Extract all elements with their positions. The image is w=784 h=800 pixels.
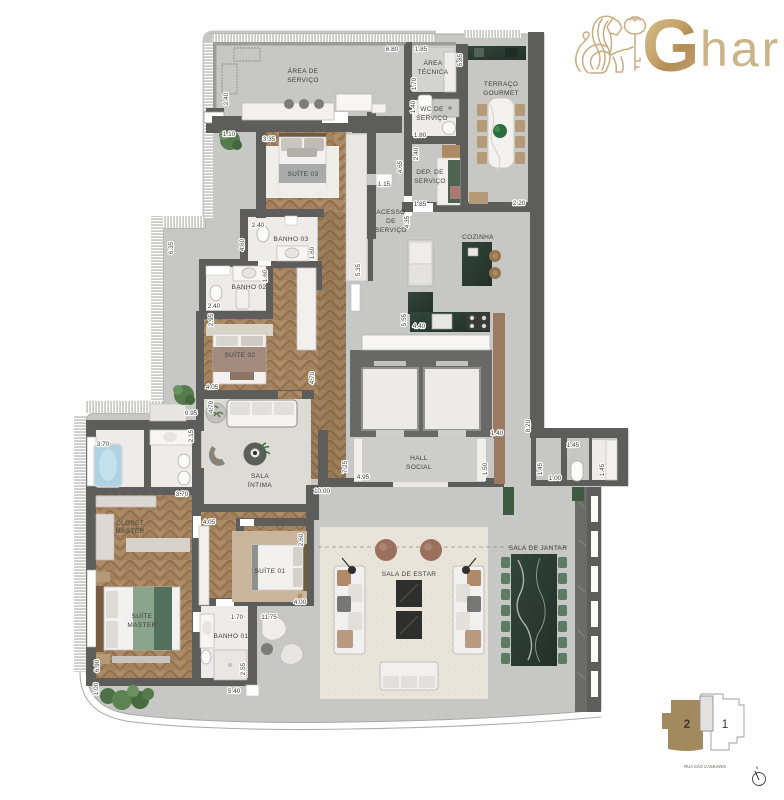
- svg-text:BANHO 01: BANHO 01: [214, 633, 249, 640]
- svg-text:6.35: 6.35: [168, 241, 175, 254]
- svg-text:DE: DE: [386, 218, 396, 225]
- svg-text:SERVIÇO: SERVIÇO: [375, 227, 407, 234]
- svg-text:BANHO 03: BANHO 03: [274, 236, 309, 243]
- svg-text:TÉCNICA: TÉCNICA: [418, 67, 449, 76]
- svg-text:1.60: 1.60: [262, 269, 269, 282]
- svg-text:1.70: 1.70: [411, 77, 418, 90]
- svg-text:3.70: 3.70: [97, 441, 110, 448]
- svg-text:1.15: 1.15: [378, 181, 391, 188]
- svg-text:1.00: 1.00: [93, 682, 100, 695]
- svg-text:5.85: 5.85: [457, 53, 464, 66]
- svg-text:4.70: 4.70: [208, 400, 215, 413]
- svg-text:6.80: 6.80: [386, 46, 399, 53]
- svg-text:GOURMET: GOURMET: [483, 90, 519, 97]
- svg-text:1.40: 1.40: [410, 100, 417, 113]
- svg-text:BANHO 02: BANHO 02: [232, 284, 267, 291]
- svg-text:CLOSET: CLOSET: [116, 520, 144, 527]
- svg-text:1.60: 1.60: [309, 246, 316, 259]
- svg-text:2.95: 2.95: [208, 313, 215, 326]
- svg-text:2.15: 2.15: [188, 429, 195, 442]
- svg-text:ÁREA DE: ÁREA DE: [288, 66, 319, 75]
- svg-text:SUÍTE 02: SUÍTE 02: [225, 350, 256, 359]
- svg-text:2.60: 2.60: [298, 533, 305, 546]
- svg-text:6.90: 6.90: [94, 659, 101, 672]
- svg-text:3.70: 3.70: [176, 491, 189, 498]
- svg-text:2.40: 2.40: [208, 303, 221, 310]
- svg-text:DEP. DE: DEP. DE: [416, 169, 444, 176]
- svg-text:G: G: [642, 4, 700, 87]
- svg-text:8.20: 8.20: [525, 419, 532, 432]
- svg-text:N: N: [756, 766, 759, 770]
- svg-text:SERVIÇO: SERVIÇO: [416, 115, 448, 122]
- svg-text:1.45: 1.45: [567, 442, 580, 449]
- svg-text:TERRAÇO: TERRAÇO: [484, 81, 518, 88]
- svg-text:2: 2: [684, 717, 691, 731]
- svg-text:MASTER: MASTER: [115, 528, 144, 535]
- svg-text:SUÍTE 01: SUÍTE 01: [255, 566, 286, 575]
- svg-text:HALL: HALL: [410, 455, 428, 462]
- svg-text:3.35: 3.35: [263, 136, 276, 143]
- svg-text:2.40: 2.40: [252, 222, 265, 229]
- svg-text:11.75: 11.75: [261, 614, 277, 621]
- svg-text:1.45: 1.45: [537, 462, 544, 475]
- svg-text:0.95: 0.95: [185, 410, 198, 417]
- svg-text:4.65: 4.65: [397, 160, 404, 173]
- svg-text:5.55: 5.55: [401, 313, 408, 326]
- svg-text:har: har: [700, 21, 781, 77]
- svg-text:4.60: 4.60: [239, 238, 246, 251]
- svg-text:SALA DE ESTAR: SALA DE ESTAR: [382, 571, 437, 578]
- svg-text:WC DE: WC DE: [420, 106, 444, 113]
- svg-text:4.05: 4.05: [206, 384, 219, 391]
- svg-text:1.70: 1.70: [231, 614, 244, 621]
- svg-text:SALA: SALA: [251, 473, 269, 480]
- svg-text:1: 1: [722, 717, 729, 731]
- svg-text:COZINHA: COZINHA: [462, 234, 494, 241]
- svg-text:2.40: 2.40: [223, 92, 230, 105]
- svg-text:MASTER: MASTER: [127, 622, 156, 629]
- svg-text:4.00: 4.00: [294, 599, 307, 606]
- svg-text:1.45: 1.45: [599, 463, 606, 476]
- svg-text:4.40: 4.40: [413, 323, 426, 330]
- svg-text:SERVIÇO: SERVIÇO: [414, 178, 446, 185]
- svg-text:7.25: 7.25: [342, 460, 349, 473]
- svg-text:RUA SÃO CASSIANO: RUA SÃO CASSIANO: [684, 764, 726, 769]
- svg-text:1.00: 1.00: [549, 475, 562, 482]
- svg-text:SUÍTE 03: SUÍTE 03: [288, 169, 319, 178]
- svg-text:SALA DE JANTAR: SALA DE JANTAR: [509, 545, 568, 552]
- svg-text:2.20: 2.20: [513, 200, 526, 207]
- svg-text:5.35: 5.35: [355, 263, 362, 276]
- svg-text:2.55: 2.55: [240, 662, 247, 675]
- svg-text:SOCIAL: SOCIAL: [406, 464, 432, 471]
- svg-text:1.50: 1.50: [482, 462, 489, 475]
- svg-text:4.70: 4.70: [309, 371, 316, 384]
- svg-text:2.40: 2.40: [413, 147, 420, 160]
- svg-text:ÁREA: ÁREA: [423, 58, 442, 67]
- svg-text:10.00: 10.00: [314, 488, 330, 495]
- svg-text:1.80: 1.80: [414, 132, 427, 139]
- svg-text:4.95: 4.95: [357, 474, 370, 481]
- svg-text:ÍNTIMA: ÍNTIMA: [248, 480, 272, 489]
- svg-text:1.10: 1.10: [223, 131, 236, 138]
- svg-text:4.35: 4.35: [404, 215, 411, 228]
- svg-text:ACESSO: ACESSO: [376, 209, 405, 216]
- svg-text:1.40: 1.40: [491, 430, 504, 437]
- svg-text:4.05: 4.05: [203, 519, 216, 526]
- svg-text:1.85: 1.85: [415, 46, 428, 53]
- svg-text:1.85: 1.85: [414, 201, 427, 208]
- svg-text:SUÍTE: SUÍTE: [132, 611, 153, 620]
- svg-text:SERVIÇO: SERVIÇO: [287, 77, 319, 84]
- svg-text:5.40: 5.40: [228, 688, 241, 695]
